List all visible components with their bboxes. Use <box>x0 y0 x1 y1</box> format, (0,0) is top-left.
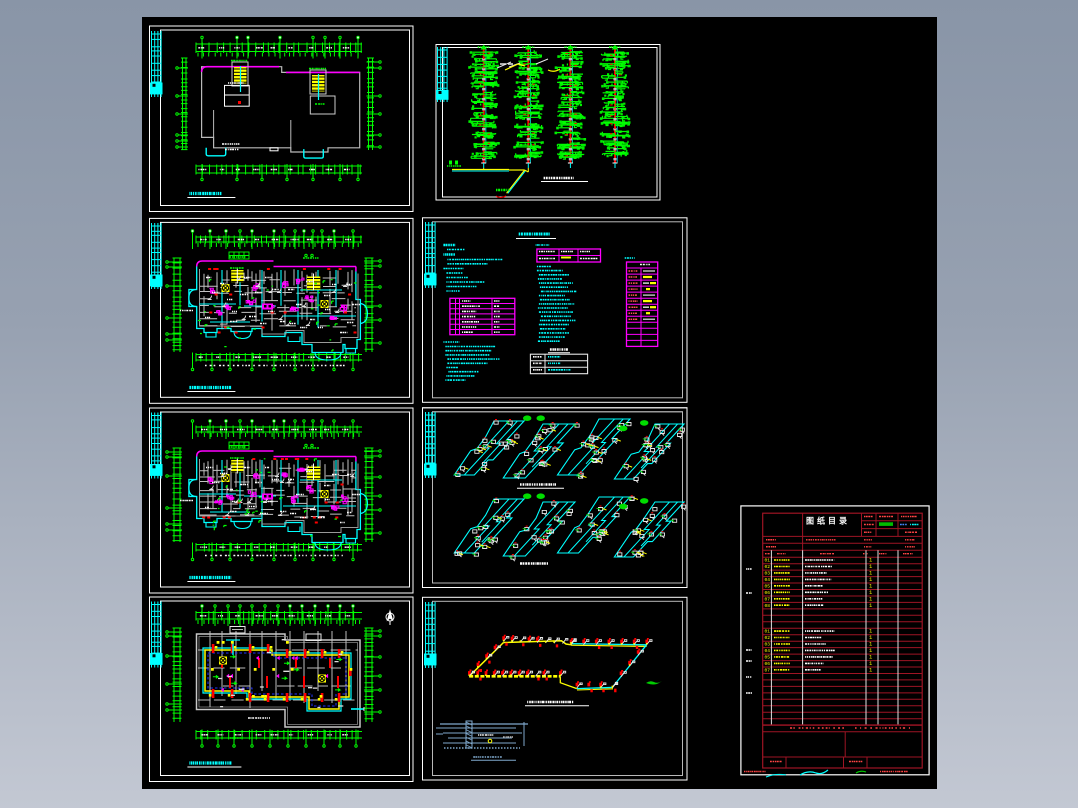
svg-text:05: 05 <box>765 583 771 589</box>
svg-text:08: 08 <box>765 603 771 609</box>
svg-text:06: 06 <box>765 590 771 596</box>
svg-text:07: 07 <box>765 596 771 602</box>
svg-text:07: 07 <box>765 667 771 673</box>
svg-text:图纸目录: 图纸目录 <box>806 516 850 526</box>
svg-text:04: 04 <box>765 648 771 654</box>
svg-text:04: 04 <box>765 577 771 583</box>
svg-text:06: 06 <box>765 661 771 667</box>
svg-text:01: 01 <box>765 629 771 635</box>
svg-text:01: 01 <box>765 558 771 564</box>
svg-text:02: 02 <box>765 635 771 641</box>
svg-text:03: 03 <box>765 642 771 648</box>
svg-text:02: 02 <box>765 564 771 570</box>
svg-text:03: 03 <box>765 571 771 577</box>
svg-text:05: 05 <box>765 655 771 661</box>
